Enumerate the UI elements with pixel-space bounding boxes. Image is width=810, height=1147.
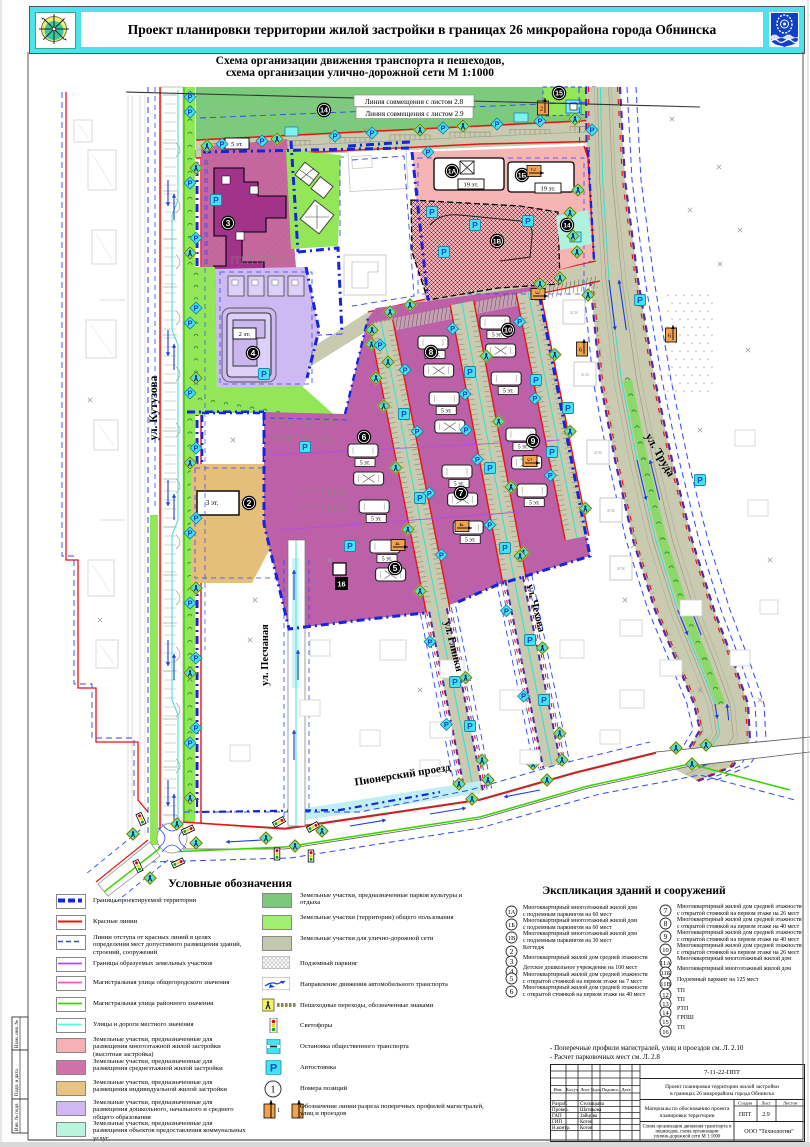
svg-text:Подп. и дата: Подп. и дата	[15, 1069, 20, 1096]
svg-text:Инв. № подл.: Инв. № подл.	[14, 1103, 20, 1132]
svg-text:Взам. инв. №: Взам. инв. №	[14, 1020, 20, 1048]
